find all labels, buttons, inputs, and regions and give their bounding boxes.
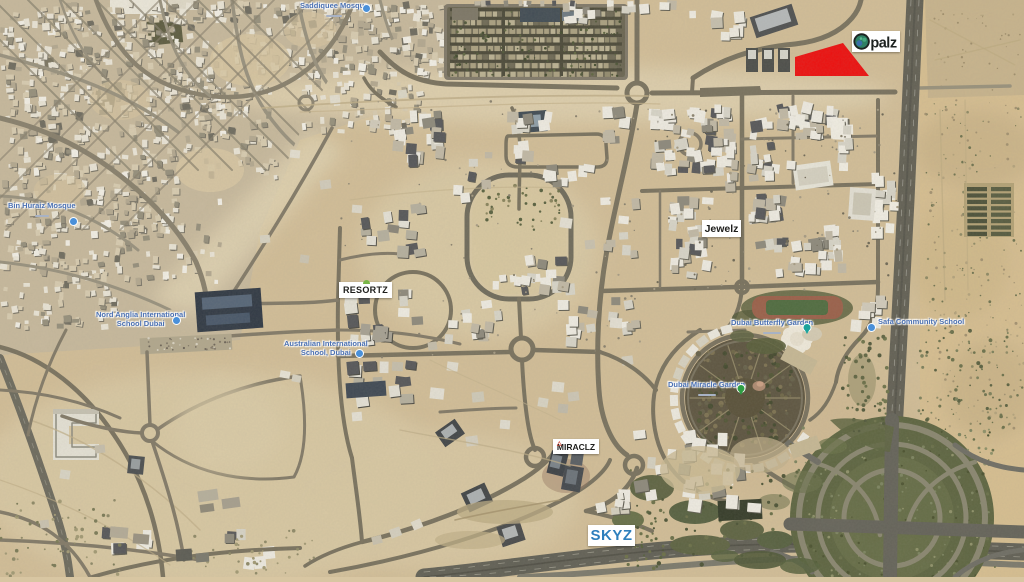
- svg-text:palz: palz: [870, 35, 896, 51]
